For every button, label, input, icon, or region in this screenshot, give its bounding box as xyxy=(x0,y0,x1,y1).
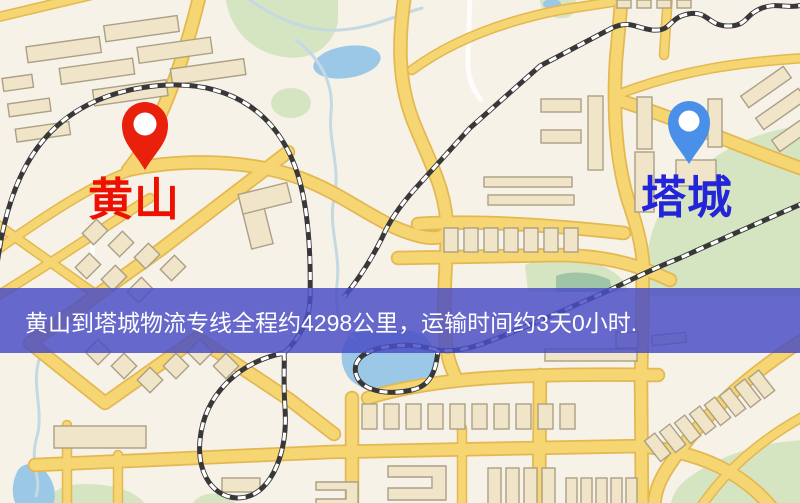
destination-label: 塔城 xyxy=(641,176,733,221)
map-canvas: 黄山 塔城 黄山到塔城物流专线全程约4298公里，运输时间约3天0小时. xyxy=(0,0,800,503)
origin-label: 黄山 xyxy=(88,178,180,223)
destination-pin-icon[interactable] xyxy=(668,101,710,164)
route-info-banner: 黄山到塔城物流专线全程约4298公里，运输时间约3天0小时. xyxy=(0,288,800,353)
map-graphic xyxy=(0,0,800,503)
route-summary-text: 黄山到塔城物流专线全程约4298公里，运输时间约3天0小时. xyxy=(0,304,637,338)
